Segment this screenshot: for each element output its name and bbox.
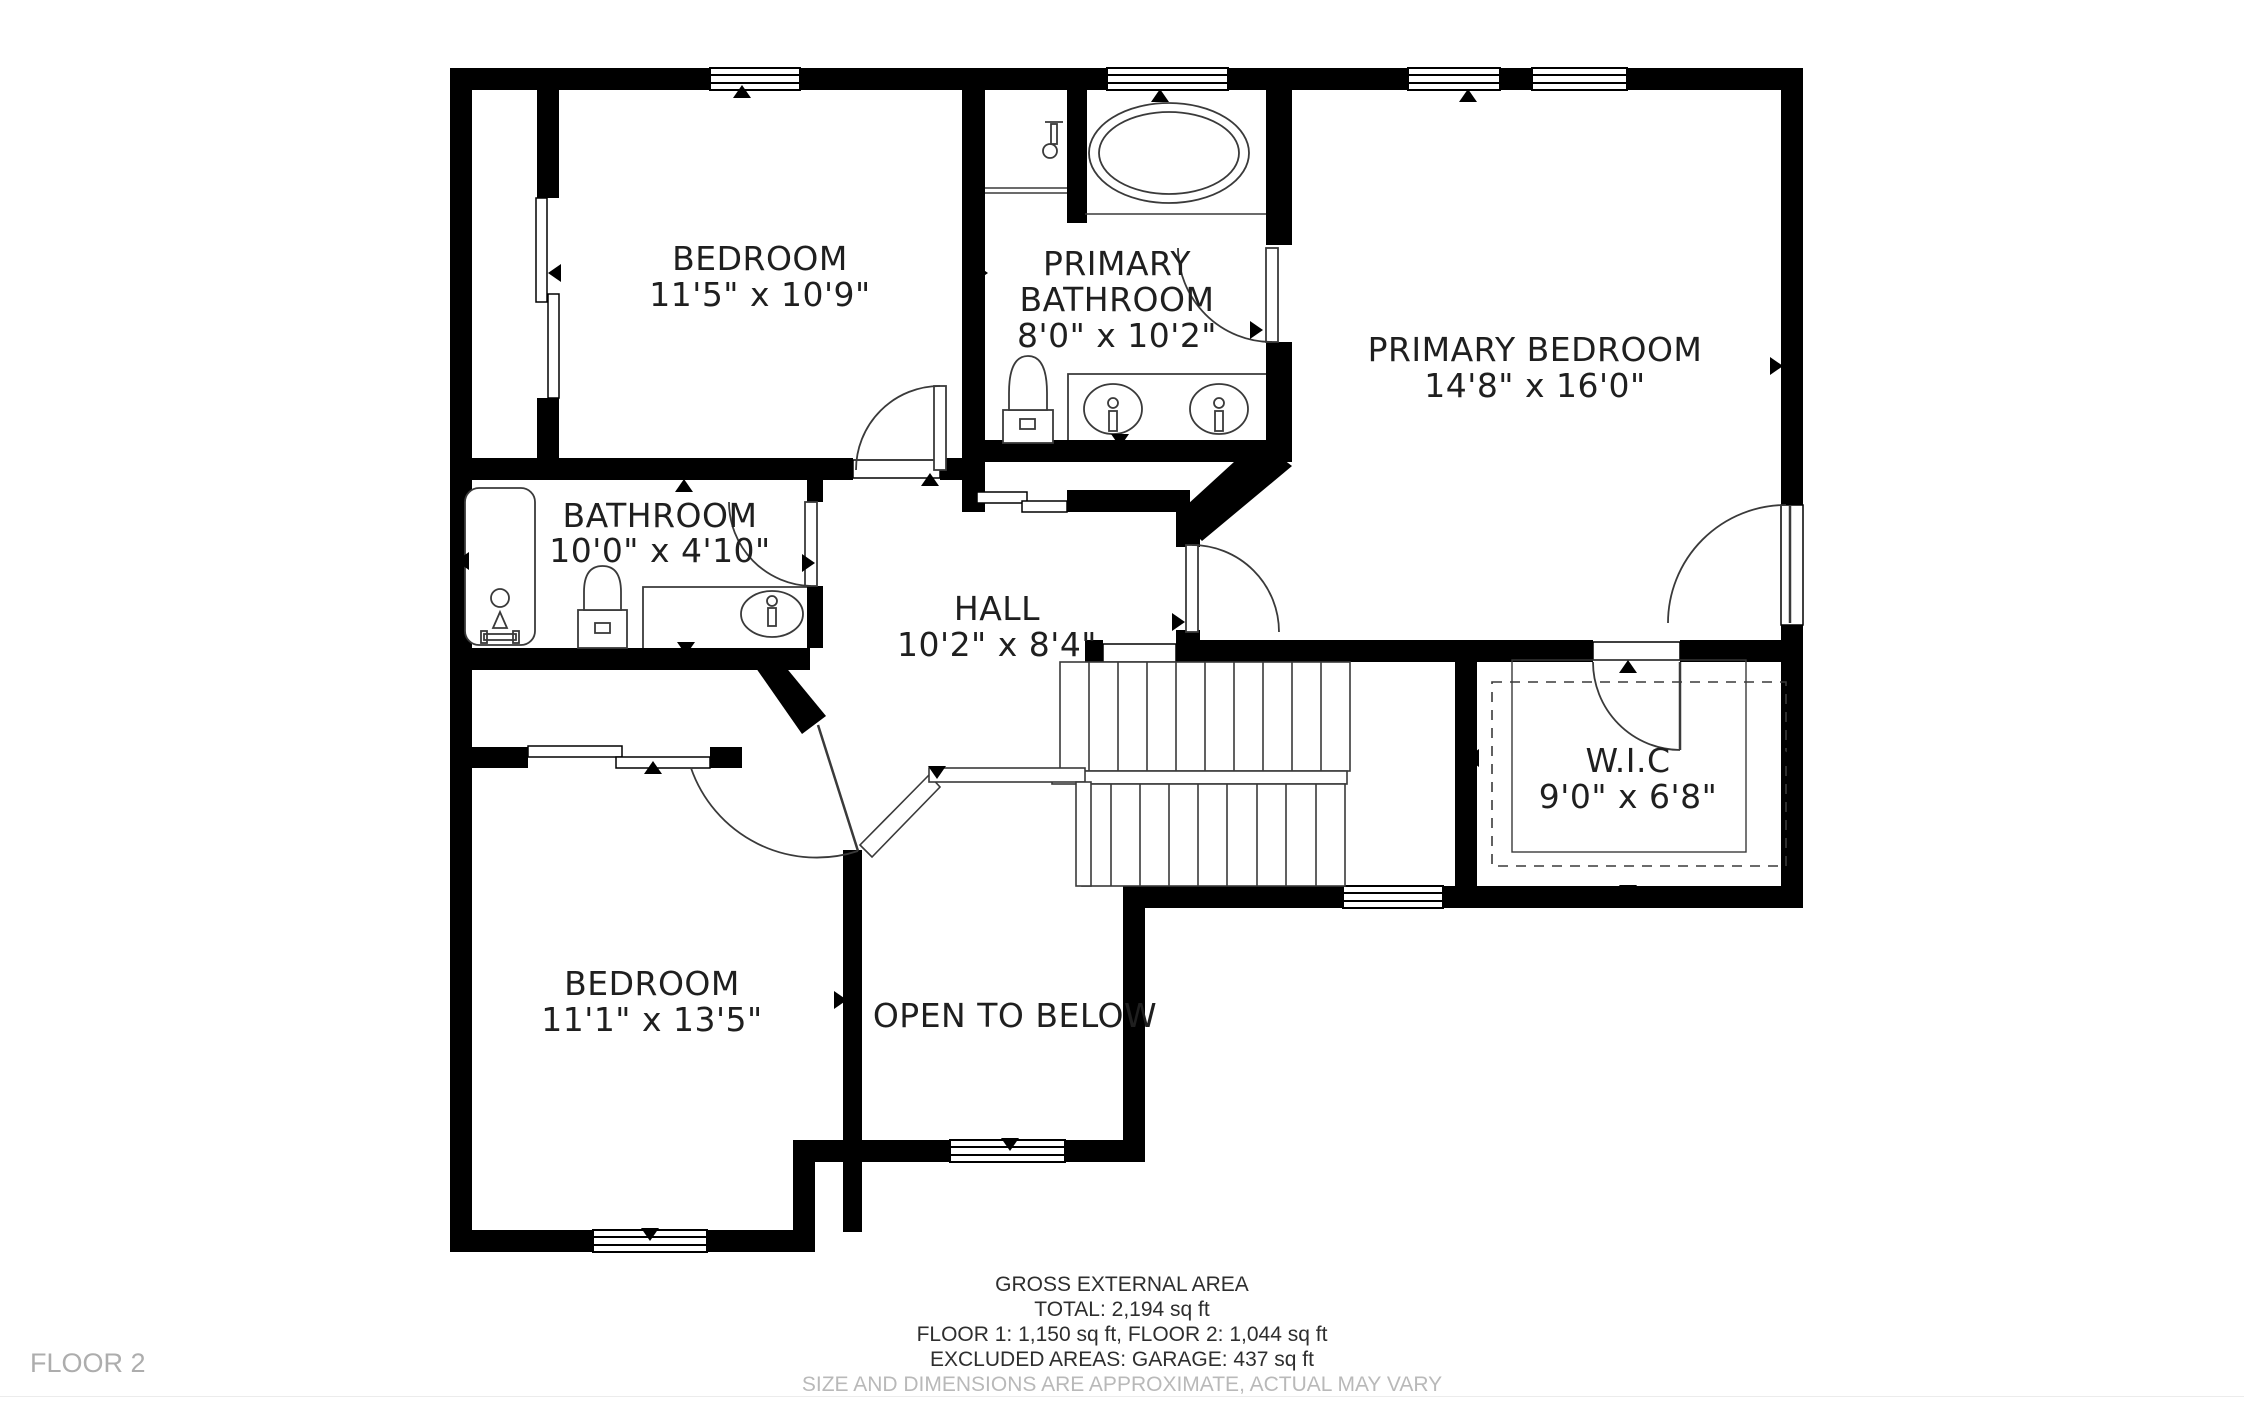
wall-shower-nook <box>1067 88 1087 223</box>
wall-bedroom1-east <box>962 88 985 480</box>
shower-head-icon <box>985 122 1067 193</box>
wall-exterior-right-upper <box>1781 68 1803 505</box>
oval-bathtub-icon <box>1085 103 1266 214</box>
direction-marker <box>1619 660 1637 673</box>
room-dims: 14'8" x 16'0" <box>1424 366 1645 405</box>
room-label-primary-bedroom: PRIMARY BEDROOM 14'8" x 16'0" <box>1368 330 1703 405</box>
bottom-divider <box>0 1396 2244 1397</box>
wall-linen-south <box>1067 490 1190 512</box>
room-label-bedroom1: BEDROOM 11'5" x 10'9" <box>649 239 870 314</box>
toilet-icon <box>1003 356 1053 443</box>
door-swing-arc <box>691 725 858 858</box>
wall-bathroom-east-lower <box>807 586 823 648</box>
window-icon <box>1107 68 1228 90</box>
bathtub-icon <box>465 488 535 645</box>
area-floors: FLOOR 1: 1,150 sq ft, FLOOR 2: 1,044 sq … <box>802 1322 1442 1347</box>
room-dims: 10'0" x 4'10" <box>549 531 770 570</box>
room-label-bathroom: BATHROOM 10'0" x 4'10" <box>549 496 770 570</box>
room-name: W.I.C <box>1585 741 1670 780</box>
wall-exterior-right-lower <box>1781 625 1803 908</box>
wall-pbath-east-upper <box>1266 88 1292 245</box>
toilet-icon <box>578 566 627 648</box>
room-name: BEDROOM <box>672 239 848 278</box>
wall-bedroom2-east <box>843 850 862 1232</box>
wall-bathroom-east-upper <box>807 478 823 502</box>
window-icon <box>1532 68 1627 90</box>
wall-stub-above-pbedroom-door <box>1176 512 1200 547</box>
wall-bedroom1-south-west <box>559 458 853 480</box>
sliding-bypass-door-icon <box>536 198 559 398</box>
room-name: BEDROOM <box>564 964 740 1003</box>
room-dims: 11'1" x 13'5" <box>541 1000 762 1039</box>
wall-pbedroom-south-east <box>1680 640 1803 662</box>
area-total: TOTAL: 2,194 sq ft <box>802 1297 1442 1322</box>
room-name: HALL <box>954 589 1040 628</box>
door-swing-arc <box>1668 505 1790 623</box>
room-dims: 9'0" x 6'8" <box>1539 777 1718 816</box>
area-summary-title: GROSS EXTERNAL AREA <box>802 1272 1442 1297</box>
window-icon <box>1408 68 1500 90</box>
wic-door-threshold <box>1593 642 1680 660</box>
direction-marker <box>675 479 693 492</box>
room-label-wic: W.I.C 9'0" x 6'8" <box>1539 741 1718 816</box>
room-label-primary-bathroom: PRIMARY BATHROOM 8'0" x 10'2" <box>1017 244 1217 355</box>
double-vanity-icon <box>1068 374 1266 440</box>
room-name: PRIMARY BEDROOM <box>1368 330 1703 369</box>
floorplan-page: BEDROOM 11'5" x 10'9" PRIMARY BATHROOM 8… <box>0 0 2244 1401</box>
pbedroom-exterior-door-threshold <box>1781 505 1803 625</box>
room-name: BATHROOM <box>563 496 758 535</box>
window-icon <box>1343 886 1443 908</box>
room-dims: 10'2" x 8'4" <box>897 625 1097 664</box>
room-label-bedroom2: BEDROOM 11'1" x 13'5" <box>541 964 762 1039</box>
wall-exterior-bottom-right <box>1123 886 1803 908</box>
direction-marker <box>1250 321 1263 339</box>
direction-marker <box>1172 613 1185 631</box>
stairs-icon <box>1052 662 1350 886</box>
wall-stair-wic-divider <box>1455 662 1477 886</box>
room-name: OPEN TO BELOW <box>873 996 1157 1035</box>
floorplan-drawing: BEDROOM 11'5" x 10'9" PRIMARY BATHROOM 8… <box>0 0 2244 1401</box>
door-swing-arc <box>1593 662 1680 750</box>
disclaimer-text: SIZE AND DIMENSIONS ARE APPROXIMATE, ACT… <box>802 1372 1442 1397</box>
area-summary: GROSS EXTERNAL AREA TOTAL: 2,194 sq ft F… <box>802 1272 1442 1397</box>
railing-icon <box>860 768 1091 886</box>
room-label-hall: HALL 10'2" x 8'4" <box>897 589 1097 664</box>
room-name: BATHROOM <box>1020 280 1215 319</box>
bedroom1-door-threshold <box>853 460 940 478</box>
stair-header-opening <box>1103 644 1176 662</box>
area-excluded: EXCLUDED AREAS: GARAGE: 437 sq ft <box>802 1347 1442 1372</box>
linen-closet-opening <box>977 492 1067 512</box>
door-swing-arc <box>1186 545 1279 632</box>
room-label-open-to-below: OPEN TO BELOW <box>873 996 1157 1035</box>
sink-icon <box>741 591 803 637</box>
room-dims: 11'5" x 10'9" <box>649 275 870 314</box>
direction-marker <box>548 264 561 282</box>
wall-closet1-south <box>450 458 559 480</box>
room-name: PRIMARY <box>1043 244 1191 283</box>
door-swing-arc <box>856 386 946 470</box>
sliding-bypass-door-icon <box>528 746 710 768</box>
wall-closet2-south-west <box>450 747 528 768</box>
wall-closet2-south-east <box>710 747 742 768</box>
window-icon <box>710 68 800 90</box>
floor-label: FLOOR 2 <box>30 1348 146 1379</box>
wall-closet1-east-upper <box>537 88 559 198</box>
staircase <box>860 662 1350 886</box>
room-dims: 8'0" x 10'2" <box>1017 316 1217 355</box>
